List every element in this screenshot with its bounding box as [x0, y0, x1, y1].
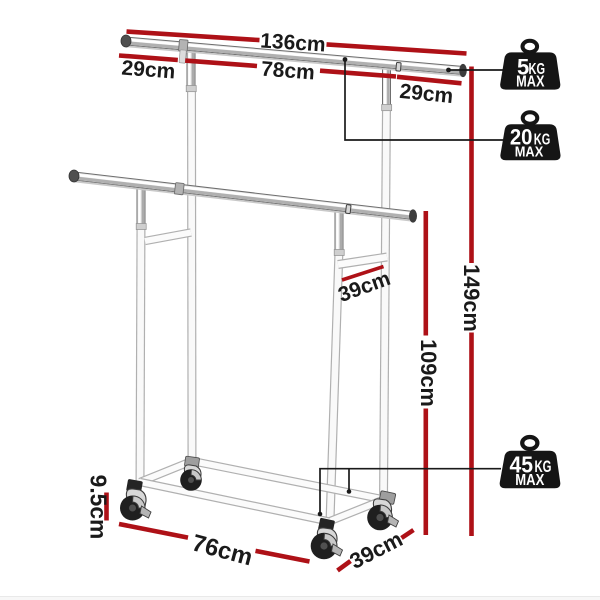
svg-text:109cm: 109cm [416, 339, 441, 407]
svg-text:9.5cm: 9.5cm [85, 475, 111, 540]
svg-text:136cm: 136cm [260, 29, 327, 56]
svg-text:29cm: 29cm [121, 57, 176, 84]
svg-text:MAX: MAX [515, 144, 544, 160]
svg-text:78cm: 78cm [260, 58, 315, 85]
svg-text:MAX: MAX [516, 74, 545, 91]
svg-text:MAX: MAX [515, 472, 544, 489]
svg-text:149cm: 149cm [459, 264, 484, 332]
